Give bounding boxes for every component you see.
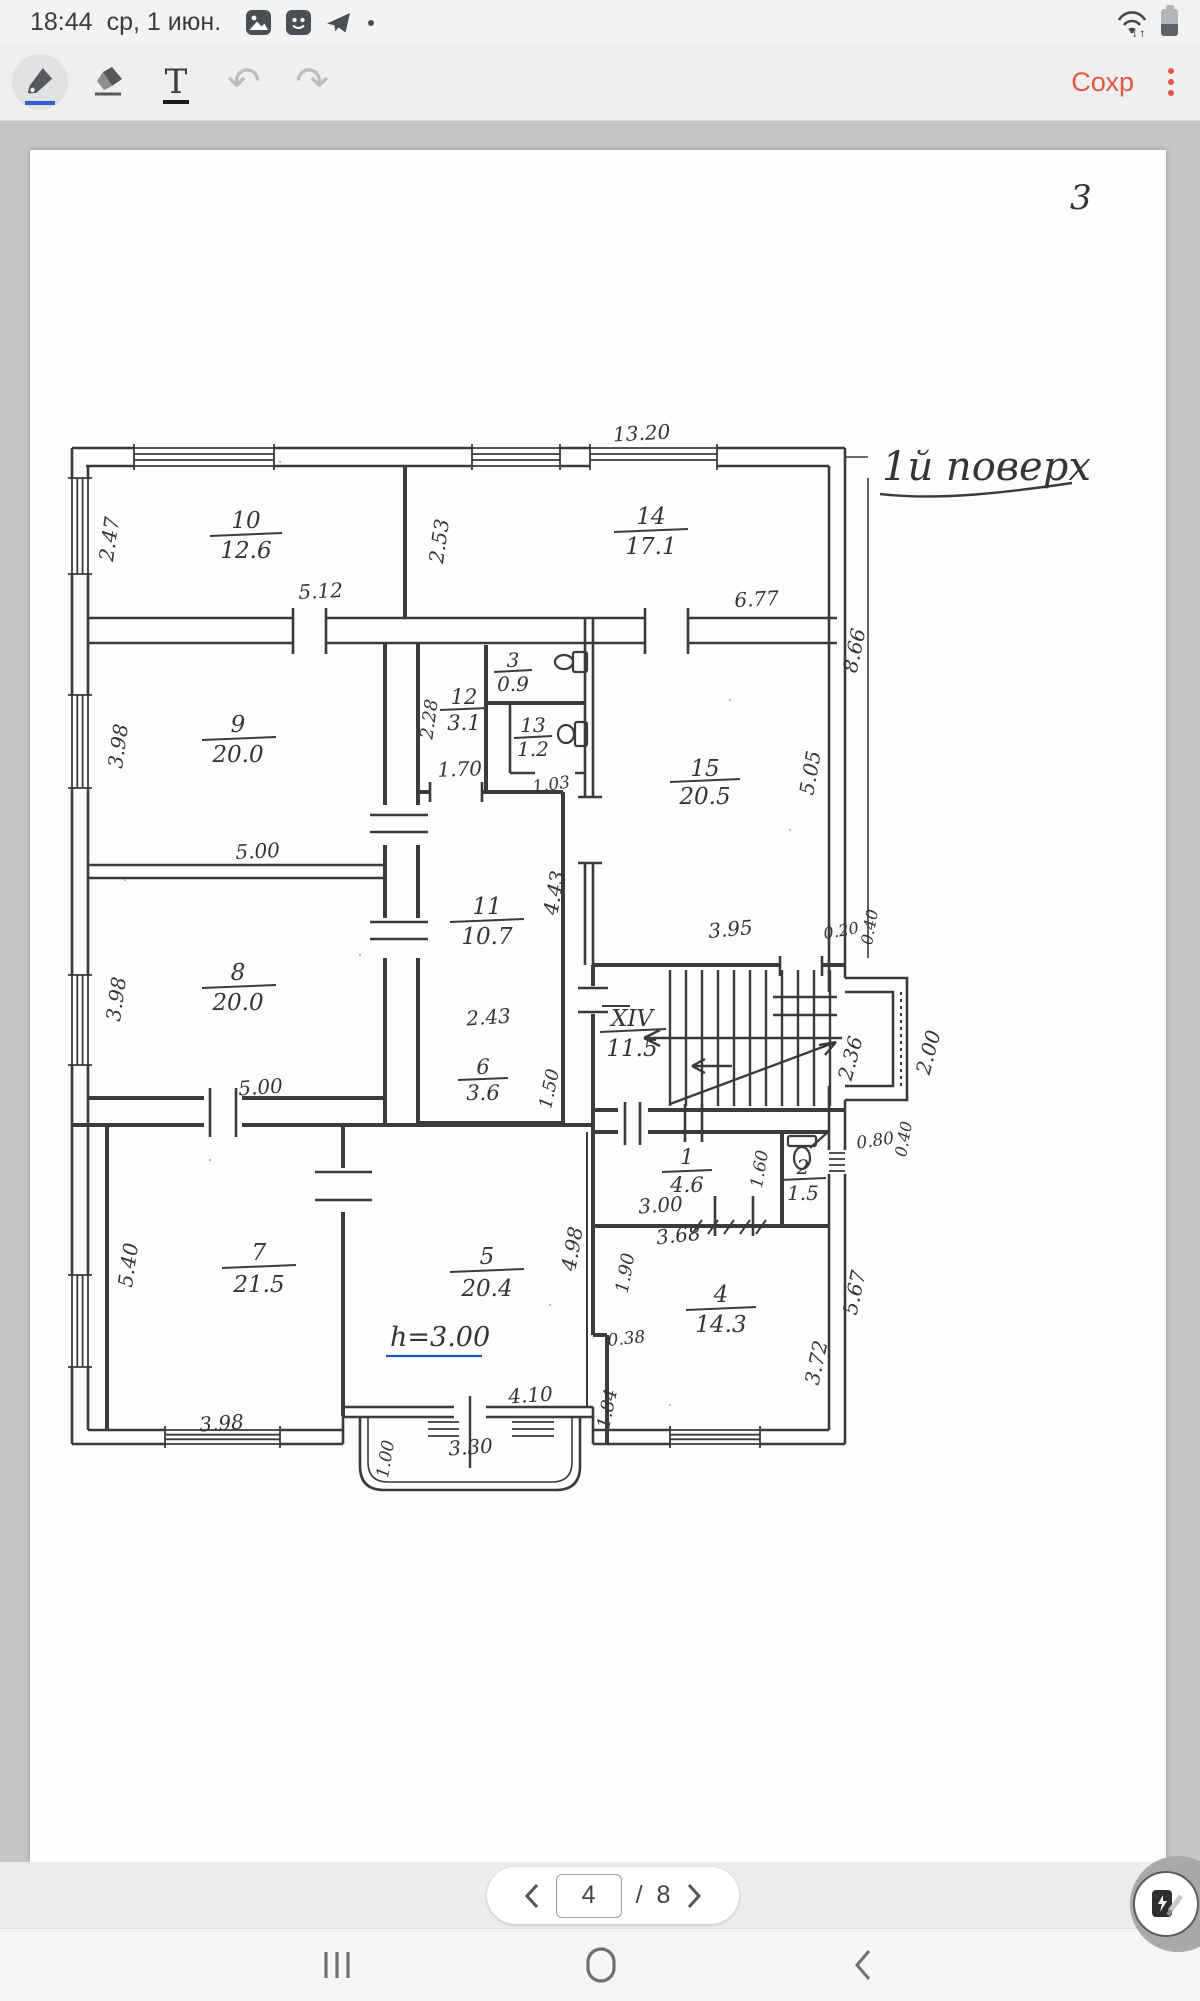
room-label: 11 [472, 894, 501, 920]
dim-label: 5.05 [794, 749, 825, 797]
back-icon [852, 1948, 874, 1982]
dim-label: 2.36 [833, 1033, 868, 1083]
room-label: 10.7 [461, 924, 513, 950]
dim-label: 1.70 [437, 756, 483, 782]
dim-label: 5.00 [235, 838, 281, 864]
room-label: 20.5 [678, 784, 730, 810]
room-label: 3.1 [447, 711, 480, 735]
room-label: 13 [520, 713, 545, 737]
room-label: 1.2 [517, 737, 549, 761]
room-label: 21.5 [232, 1272, 284, 1298]
eraser-icon [90, 64, 126, 100]
room-label: 1 [680, 1145, 693, 1169]
room-label: 1.5 [787, 1181, 819, 1205]
next-page-button[interactable] [684, 1882, 704, 1910]
status-date: ср, 1 июн. [107, 8, 222, 37]
pen-icon [23, 65, 57, 99]
room-label: 5 [480, 1244, 495, 1270]
floor-plan-drawing: 10 12.6 14 17.1 9 20.0 12 3.1 3 0.9 13 1… [30, 400, 1140, 1520]
room-label: 12 [451, 685, 478, 709]
previous-page-button[interactable] [522, 1882, 542, 1910]
room-label: 10 [231, 508, 260, 534]
room-label: 9 [231, 712, 246, 738]
dim-label: 13.20 [612, 420, 671, 447]
status-time: 18:44 [30, 8, 93, 37]
dim-label: 5.12 [298, 578, 344, 604]
dim-label: 3.95 [707, 915, 753, 943]
dim-label: 2.53 [424, 517, 454, 565]
pen-tool-button[interactable] [12, 54, 68, 110]
room-label: 20.0 [211, 742, 263, 768]
dim-label: 3.30 [447, 1433, 493, 1460]
dim-label: 4.10 [506, 1381, 553, 1408]
page-corner-number: 3 [1070, 178, 1092, 218]
room-label: 15 [690, 756, 719, 782]
dim-label: 3.98 [198, 1409, 244, 1436]
room-label: 20.0 [211, 990, 263, 1016]
svg-text:↓↑: ↓↑ [1131, 30, 1146, 37]
telegram-icon [325, 9, 353, 36]
dim-label: 3.00 [637, 1191, 683, 1218]
room-label: 12.6 [220, 538, 271, 564]
dim-label: 5.67 [838, 1268, 871, 1317]
recents-button[interactable] [307, 1943, 367, 1987]
room-label: 3 [507, 648, 520, 672]
room-label: 20.4 [460, 1276, 512, 1302]
sink-icon [558, 722, 587, 746]
scanned-page[interactable]: 3 [30, 150, 1166, 1862]
room-label: 6 [476, 1055, 489, 1079]
dim-label: 2.47 [94, 515, 124, 564]
room-label: 17.1 [625, 534, 676, 560]
battery-icon [1161, 9, 1178, 36]
dim-label: 1.84 [593, 1387, 622, 1431]
dim-label: 4.98 [556, 1225, 588, 1274]
pagination-bar: 4 / 8 [0, 1862, 1200, 1928]
undo-button[interactable]: ↶ [216, 54, 272, 110]
dim-label: 3.98 [101, 975, 131, 1022]
text-tool-button[interactable]: T [148, 54, 204, 110]
page-number-input[interactable]: 4 [556, 1874, 622, 1918]
toilet-icon [555, 652, 587, 672]
redo-icon: ↷ [295, 62, 329, 102]
back-button[interactable] [833, 1943, 893, 1987]
dim-label: 3.68 [655, 1221, 702, 1250]
dim-label: 2.00 [911, 1027, 946, 1077]
dim-label: 4.43 [538, 869, 570, 918]
wifi-icon: ↓↑ [1115, 7, 1149, 37]
dim-label: 1.03 [531, 773, 571, 798]
dim-label: 5.00 [237, 1073, 283, 1100]
redo-button[interactable]: ↷ [284, 54, 340, 110]
save-button[interactable]: Сохр [1071, 67, 1134, 98]
room-label: 4 [713, 1282, 729, 1308]
dim-label: 5.40 [113, 1241, 143, 1289]
pen-color-indicator [25, 101, 55, 106]
document-canvas: 3 [0, 120, 1200, 1862]
dim-label: 8.66 [838, 626, 871, 675]
floor-title: 1й поверх [882, 444, 1091, 490]
room-label: 7 [252, 1240, 267, 1266]
text-color-indicator [163, 100, 189, 104]
dim-label: 0.80 [855, 1128, 895, 1153]
text-tool-icon: T [165, 65, 188, 99]
room-label: 3.6 [466, 1081, 499, 1105]
page-separator: / [636, 1881, 643, 1910]
room-label: 2 [796, 1155, 810, 1179]
eraser-tool-button[interactable] [80, 54, 136, 110]
annotation-toolbar: T ↶ ↷ Сохр [0, 44, 1200, 121]
dim-label: 3.98 [103, 722, 133, 769]
dim-label: 0.38 [607, 1327, 647, 1351]
home-icon [585, 1946, 617, 1984]
android-navigation-bar [0, 1928, 1200, 2001]
height-note: h=3.00 [390, 1322, 490, 1353]
window-symbols [68, 444, 847, 1448]
dim-label: 1.50 [535, 1067, 564, 1111]
scan-noise [124, 461, 791, 1406]
dim-label: 2.43 [464, 1003, 511, 1030]
dim-label: 0.40 [857, 908, 882, 946]
dim-label: 0.40 [891, 1120, 916, 1158]
room-label: 14.3 [695, 1312, 746, 1338]
dim-label: 1.90 [612, 1251, 640, 1294]
room-label: 14 [636, 504, 665, 530]
overflow-menu-button[interactable] [1168, 63, 1174, 101]
room-label: 8 [231, 960, 246, 986]
dimension-labels: 13.20 2.47 5.12 2.53 6.77 8.66 2.28 1.70… [94, 420, 946, 1480]
more-notifications-dot [366, 9, 376, 36]
messenger-app-icon [285, 9, 312, 36]
status-bar: 18:44 ср, 1 июн. ↓↑ [0, 0, 1200, 44]
room-label: XIV [609, 1006, 655, 1032]
dim-label: 6.77 [734, 586, 780, 612]
dim-label: 3.72 [800, 1338, 833, 1387]
dim-label: 1.00 [373, 1439, 399, 1480]
total-pages: 8 [657, 1881, 671, 1910]
gallery-icon [245, 9, 272, 36]
dim-label: 2.28 [416, 698, 443, 742]
undo-icon: ↶ [227, 62, 261, 102]
dim-label: 1.60 [747, 1149, 773, 1190]
room-label: 0.9 [497, 672, 529, 696]
recents-icon [320, 1950, 354, 1980]
page-navigator: 4 / 8 [487, 1867, 739, 1924]
document-pencil-icon [1148, 1887, 1184, 1921]
dim-label: 0.20 [822, 918, 860, 943]
home-button[interactable] [571, 1943, 631, 1987]
room-label: 11.5 [606, 1036, 657, 1062]
